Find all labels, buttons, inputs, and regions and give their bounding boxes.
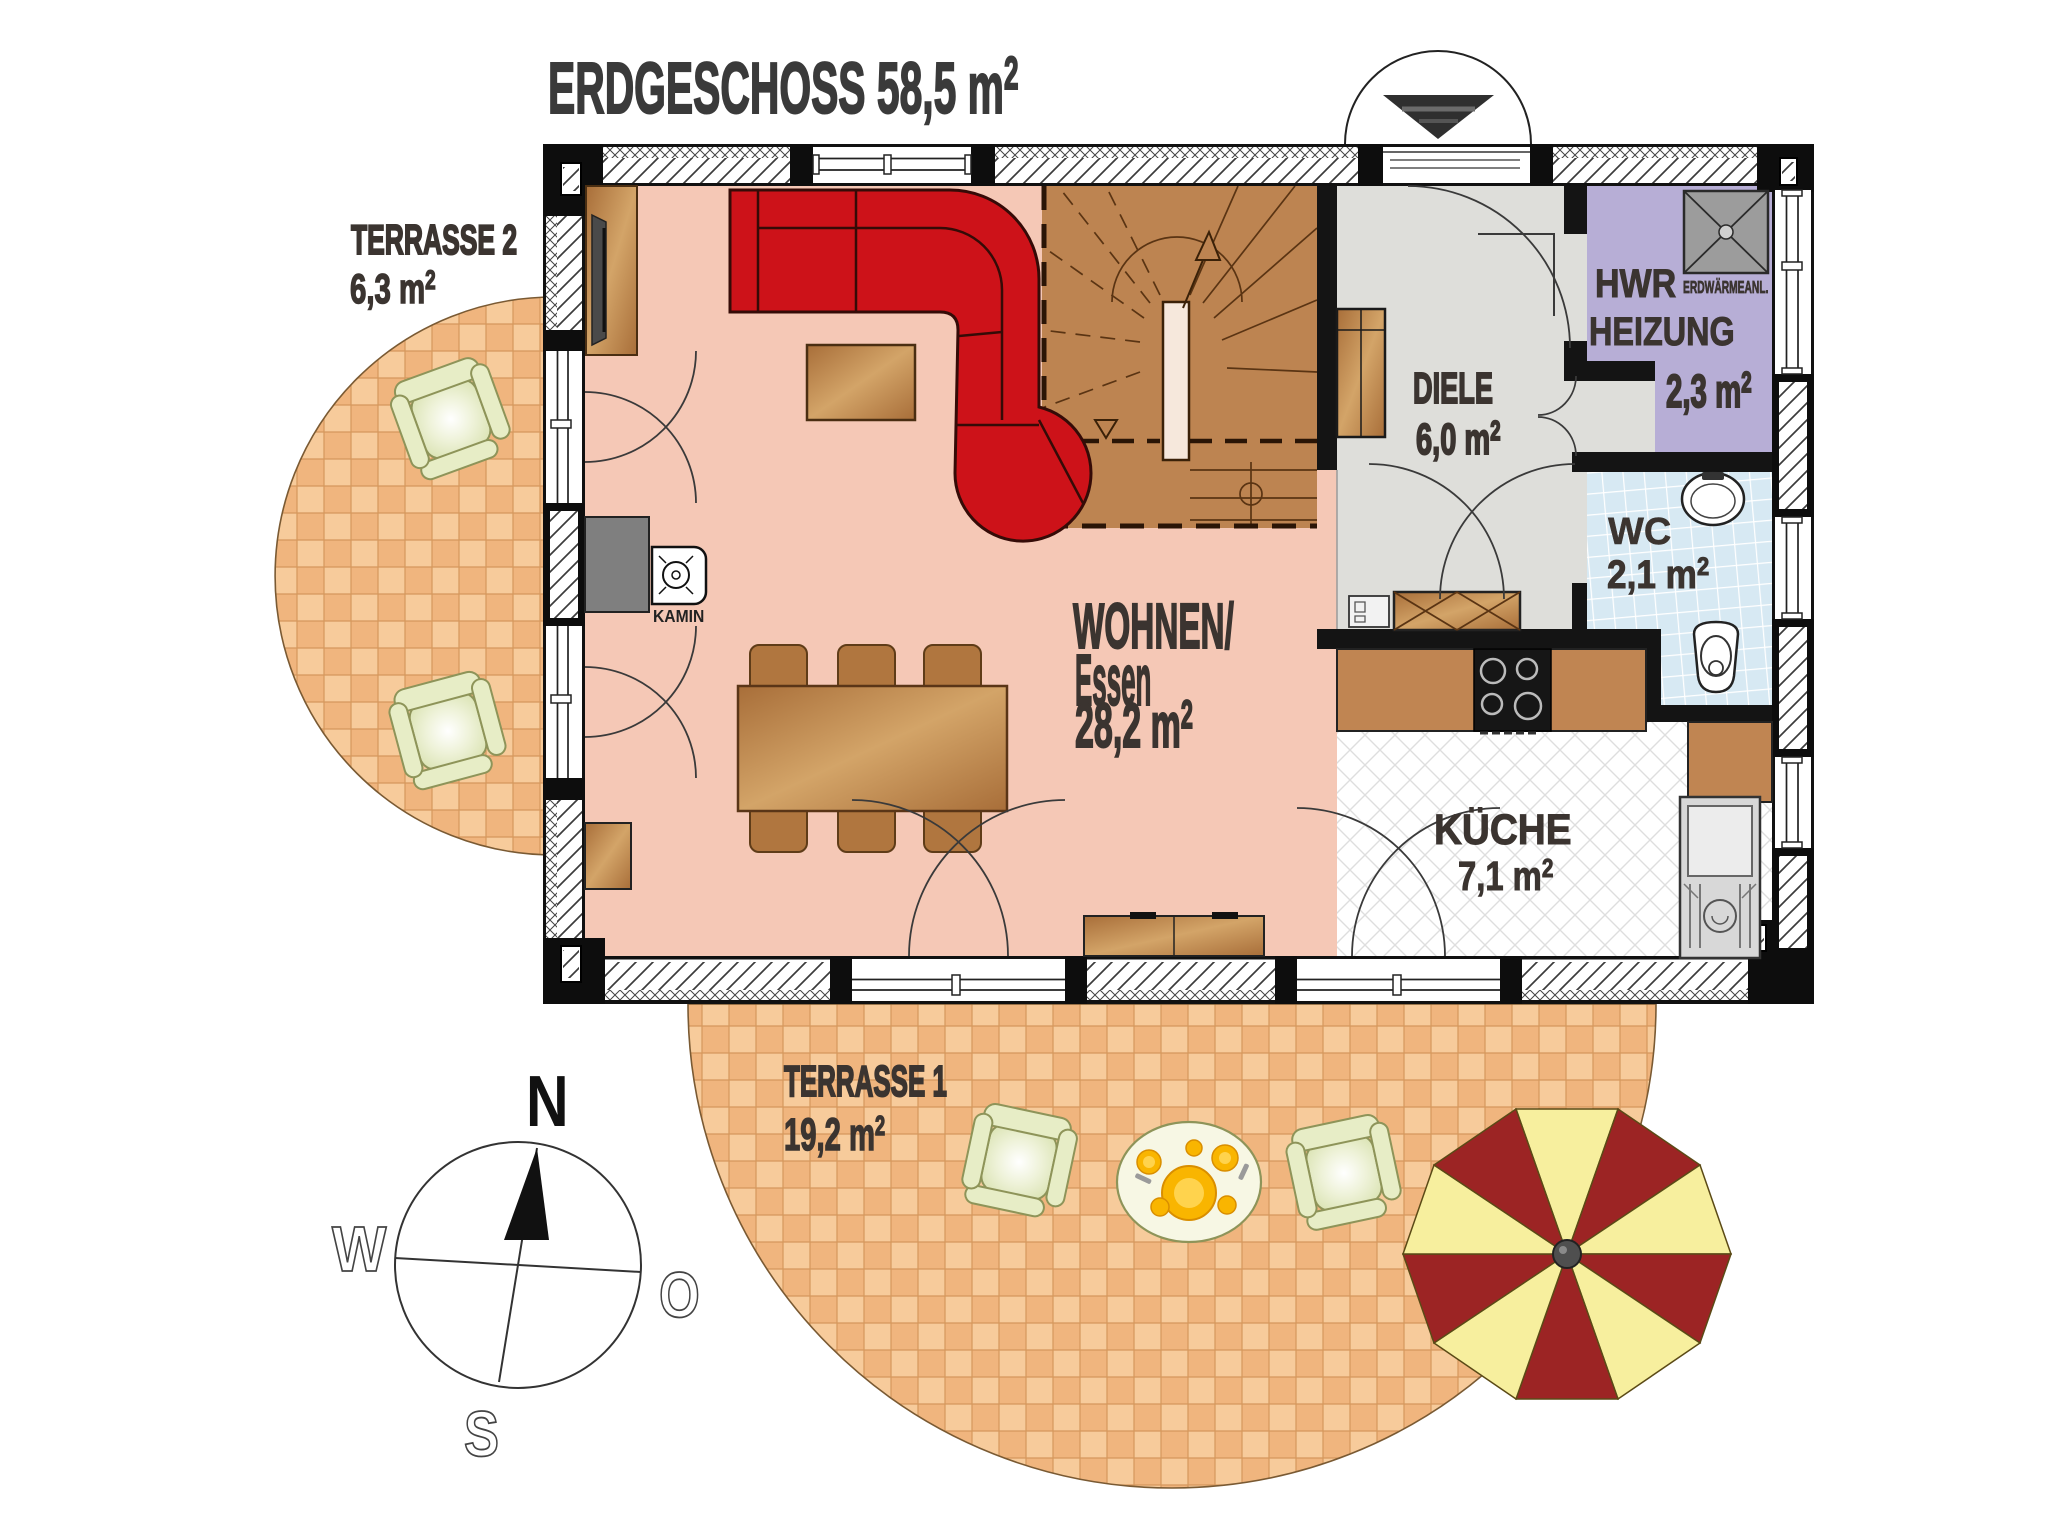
- svg-text:S: S: [464, 1399, 499, 1470]
- svg-text:HWR: HWR: [1595, 260, 1676, 305]
- svg-text:2,3 m2: 2,3 m2: [1666, 367, 1752, 418]
- svg-text:ERDWÄRMEANL.: ERDWÄRMEANL.: [1683, 277, 1768, 298]
- svg-text:7,1 m2: 7,1 m2: [1458, 852, 1553, 898]
- svg-text:WC: WC: [1608, 511, 1671, 553]
- svg-text:KAMIN: KAMIN: [653, 606, 704, 626]
- svg-text:6,0 m2: 6,0 m2: [1416, 414, 1501, 464]
- svg-text:W: W: [332, 1213, 387, 1284]
- svg-text:DIELE: DIELE: [1413, 363, 1493, 412]
- svg-text:28,2 m2: 28,2 m2: [1075, 690, 1193, 761]
- svg-text:ERDGESCHOSS 58,5 m2: ERDGESCHOSS 58,5 m2: [548, 47, 1018, 129]
- svg-text:N: N: [526, 1060, 569, 1141]
- svg-text:TERRASSE 2: TERRASSE 2: [351, 217, 517, 264]
- svg-text:O: O: [659, 1260, 700, 1331]
- svg-text:KÜCHE: KÜCHE: [1434, 805, 1572, 853]
- svg-text:TERRASSE 1: TERRASSE 1: [784, 1056, 947, 1106]
- svg-text:HEIZUNG: HEIZUNG: [1589, 309, 1735, 354]
- svg-text:2,1 m2: 2,1 m2: [1607, 552, 1709, 597]
- svg-text:19,2 m2: 19,2 m2: [784, 1111, 885, 1161]
- svg-text:6,3 m2: 6,3 m2: [350, 265, 436, 313]
